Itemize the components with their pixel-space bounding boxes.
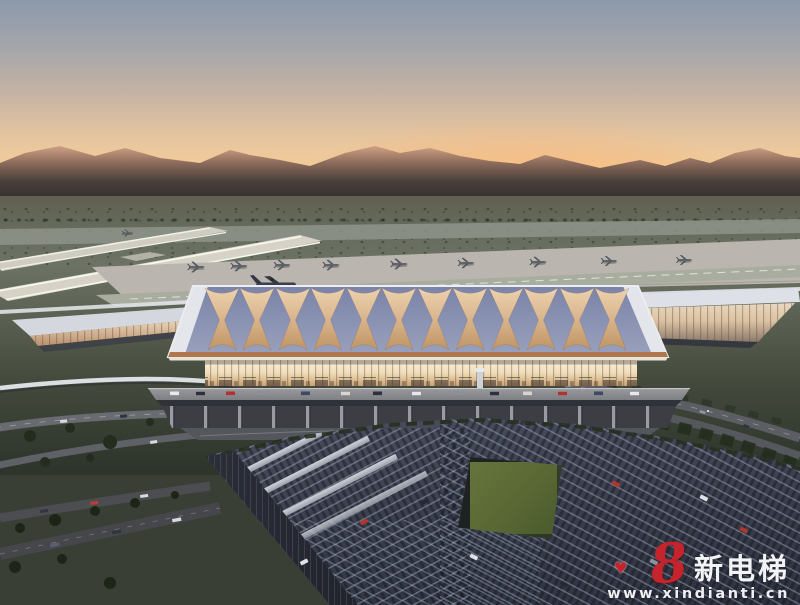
control-tower — [477, 370, 483, 388]
control-tower-cab — [476, 368, 485, 372]
road-shadow — [156, 400, 682, 406]
watermark-logo-row: 8 ♥ 新电梯 — [590, 530, 790, 584]
mountain-range — [0, 118, 800, 196]
terminal-main-hall — [168, 286, 668, 388]
mountain-silhouette — [0, 146, 800, 196]
bottom-left-roads — [0, 486, 220, 554]
terminal-complex — [0, 280, 800, 440]
airport-rendering-scene: 8 ♥ 新电梯 www.xindianti.cn — [0, 0, 800, 605]
taxiway-connector — [120, 252, 166, 261]
logo-8: 8 — [648, 534, 691, 592]
main-roof — [168, 286, 668, 357]
heart-icon: ♥ — [614, 561, 627, 576]
back-taxiway — [0, 219, 800, 245]
sunken-courtyard — [458, 457, 562, 539]
ceiling-shadow — [205, 360, 637, 365]
interior-kiosks — [205, 377, 637, 386]
brand-text: 新电梯 — [694, 555, 790, 584]
watermark: 8 ♥ 新电梯 www.xindianti.cn — [590, 530, 790, 602]
copper-trim — [168, 352, 668, 357]
roof-underside — [168, 357, 668, 361]
